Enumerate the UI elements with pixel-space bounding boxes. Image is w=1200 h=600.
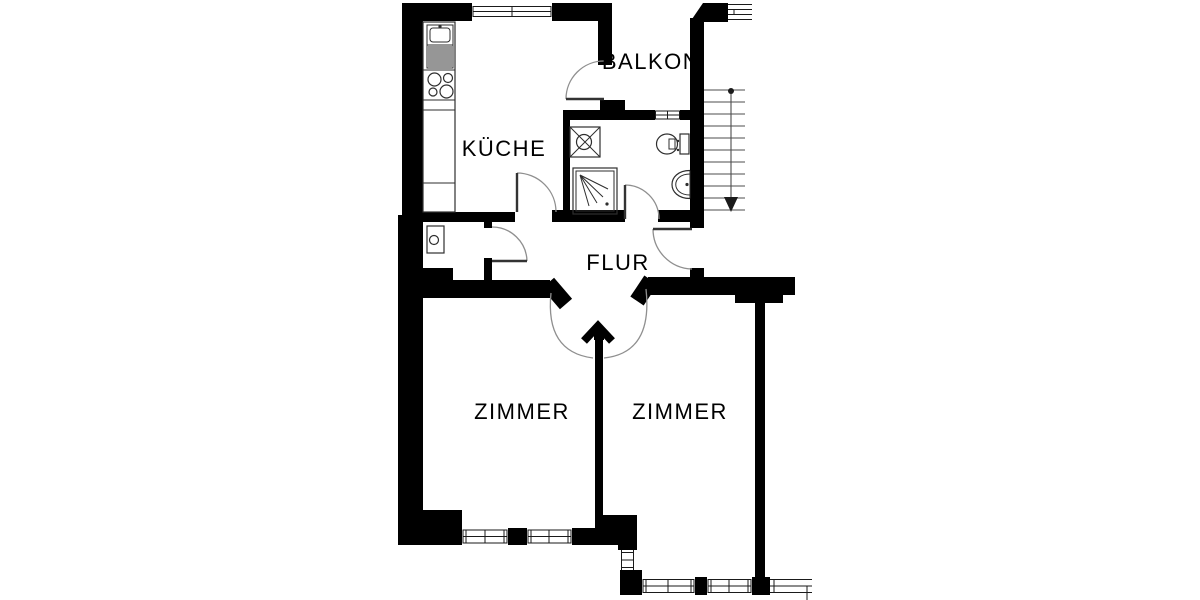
wall-hall-right bbox=[648, 277, 795, 295]
door-kitchen bbox=[517, 173, 556, 212]
counter-segments bbox=[423, 70, 455, 183]
wall-rooms-center-cap bbox=[594, 330, 604, 340]
window-kitchen-top bbox=[472, 3, 552, 21]
wall-bathroom-left bbox=[563, 120, 570, 212]
bathroom-fixtures bbox=[570, 127, 690, 214]
wall-jog-pier bbox=[620, 570, 642, 595]
burner bbox=[429, 88, 437, 96]
door-swing-arc bbox=[653, 229, 692, 269]
label-hallway: FLUR bbox=[586, 250, 649, 275]
wall-below-balcony-door bbox=[600, 100, 625, 111]
toilet-bowl bbox=[657, 134, 678, 154]
toilet-flush bbox=[669, 139, 675, 149]
walls bbox=[398, 3, 795, 595]
wall-rooms-center bbox=[595, 337, 603, 535]
window-stairwell-top-cutoff bbox=[728, 5, 752, 20]
toilet-hinge bbox=[677, 140, 679, 142]
washbasin-icon bbox=[672, 171, 690, 199]
wall-left-step bbox=[398, 215, 404, 545]
sink-basin bbox=[430, 28, 450, 42]
basin-tap bbox=[685, 183, 688, 186]
washing-machine-icon bbox=[570, 127, 600, 157]
toilet-hinge bbox=[677, 149, 679, 151]
washer-cross bbox=[570, 127, 600, 157]
wall-niche-stub-top bbox=[484, 218, 492, 228]
shower-outline bbox=[573, 168, 617, 214]
wall-corner-bottom-left bbox=[402, 510, 462, 545]
wall-top-left bbox=[402, 3, 472, 21]
toilet-icon bbox=[657, 134, 690, 154]
wall-chamfer-right-door bbox=[637, 280, 651, 301]
washer-drum bbox=[577, 135, 592, 150]
wall-pier-left-room-windows bbox=[508, 528, 527, 545]
burner bbox=[444, 74, 453, 83]
door-niche bbox=[492, 227, 527, 261]
window-room-left-1 bbox=[462, 528, 508, 545]
label-room-left: ZIMMER bbox=[474, 399, 570, 424]
label-kitchen: KÜCHE bbox=[462, 136, 547, 161]
window-frame bbox=[728, 5, 752, 20]
kitchen-sink-unit-icon bbox=[427, 25, 453, 68]
wall-bathroom-bottom-right bbox=[658, 210, 704, 222]
wall-niche-bottom bbox=[403, 268, 453, 282]
boiler-icon bbox=[427, 226, 444, 253]
boiler-dial bbox=[430, 236, 439, 245]
doors bbox=[492, 61, 692, 358]
door-swing-arc bbox=[517, 173, 556, 212]
label-balcony: BALKON bbox=[602, 49, 700, 74]
wall-hall-left bbox=[402, 280, 550, 298]
window-room-right-1 bbox=[642, 577, 695, 595]
door-swing-arc bbox=[625, 185, 659, 219]
stairs-icon bbox=[704, 88, 745, 212]
wall-bathroom-bottom-left bbox=[552, 210, 625, 222]
sink-tap bbox=[438, 25, 441, 28]
toilet-tank bbox=[680, 134, 689, 154]
window-room-left-2 bbox=[527, 528, 572, 545]
door-swing-arc bbox=[566, 61, 604, 99]
wall-pier-right-room-2 bbox=[752, 577, 770, 595]
floorplan-canvas: KÜCHE BALKON FLUR ZIMMER ZIMMER bbox=[0, 0, 1200, 600]
burner bbox=[440, 85, 453, 98]
label-room-right: ZIMMER bbox=[632, 399, 728, 424]
shower-drain bbox=[605, 202, 608, 205]
wall-pier-right-room-1 bbox=[695, 577, 707, 595]
wall-pier-chimney bbox=[735, 295, 783, 303]
drainer-hatch bbox=[429, 46, 451, 67]
shower-spray bbox=[580, 175, 608, 206]
window-frame bbox=[622, 550, 634, 570]
floorplan-svg: KÜCHE BALKON FLUR ZIMMER ZIMMER bbox=[0, 0, 1200, 600]
wall-room-right-side bbox=[755, 303, 765, 577]
door-balcony bbox=[566, 61, 604, 99]
stair-treads bbox=[704, 90, 745, 210]
wall-bathroom-top-left bbox=[563, 110, 655, 120]
door-swing-arc bbox=[492, 227, 527, 261]
stair-walk-start-dot bbox=[728, 88, 734, 94]
door-apartment-entrance bbox=[653, 229, 692, 269]
stove-icon bbox=[428, 73, 453, 98]
wall-niche-stub-bottom bbox=[484, 258, 492, 281]
wall-kitchen-bottom bbox=[405, 212, 515, 222]
window-jog-side bbox=[618, 550, 637, 570]
room-labels: KÜCHE BALKON FLUR ZIMMER ZIMMER bbox=[462, 49, 728, 424]
wall-bottom-left-room-right bbox=[572, 528, 618, 545]
wall-bathroom-top-right bbox=[680, 110, 704, 120]
window-room-right-2 bbox=[707, 577, 752, 595]
burner bbox=[428, 73, 441, 86]
window-room-right-3-cutoff bbox=[770, 577, 812, 600]
shower-icon bbox=[573, 168, 617, 214]
window-bathroom bbox=[655, 110, 680, 120]
wall-jog-step bbox=[618, 535, 637, 550]
door-bathroom bbox=[625, 185, 659, 219]
